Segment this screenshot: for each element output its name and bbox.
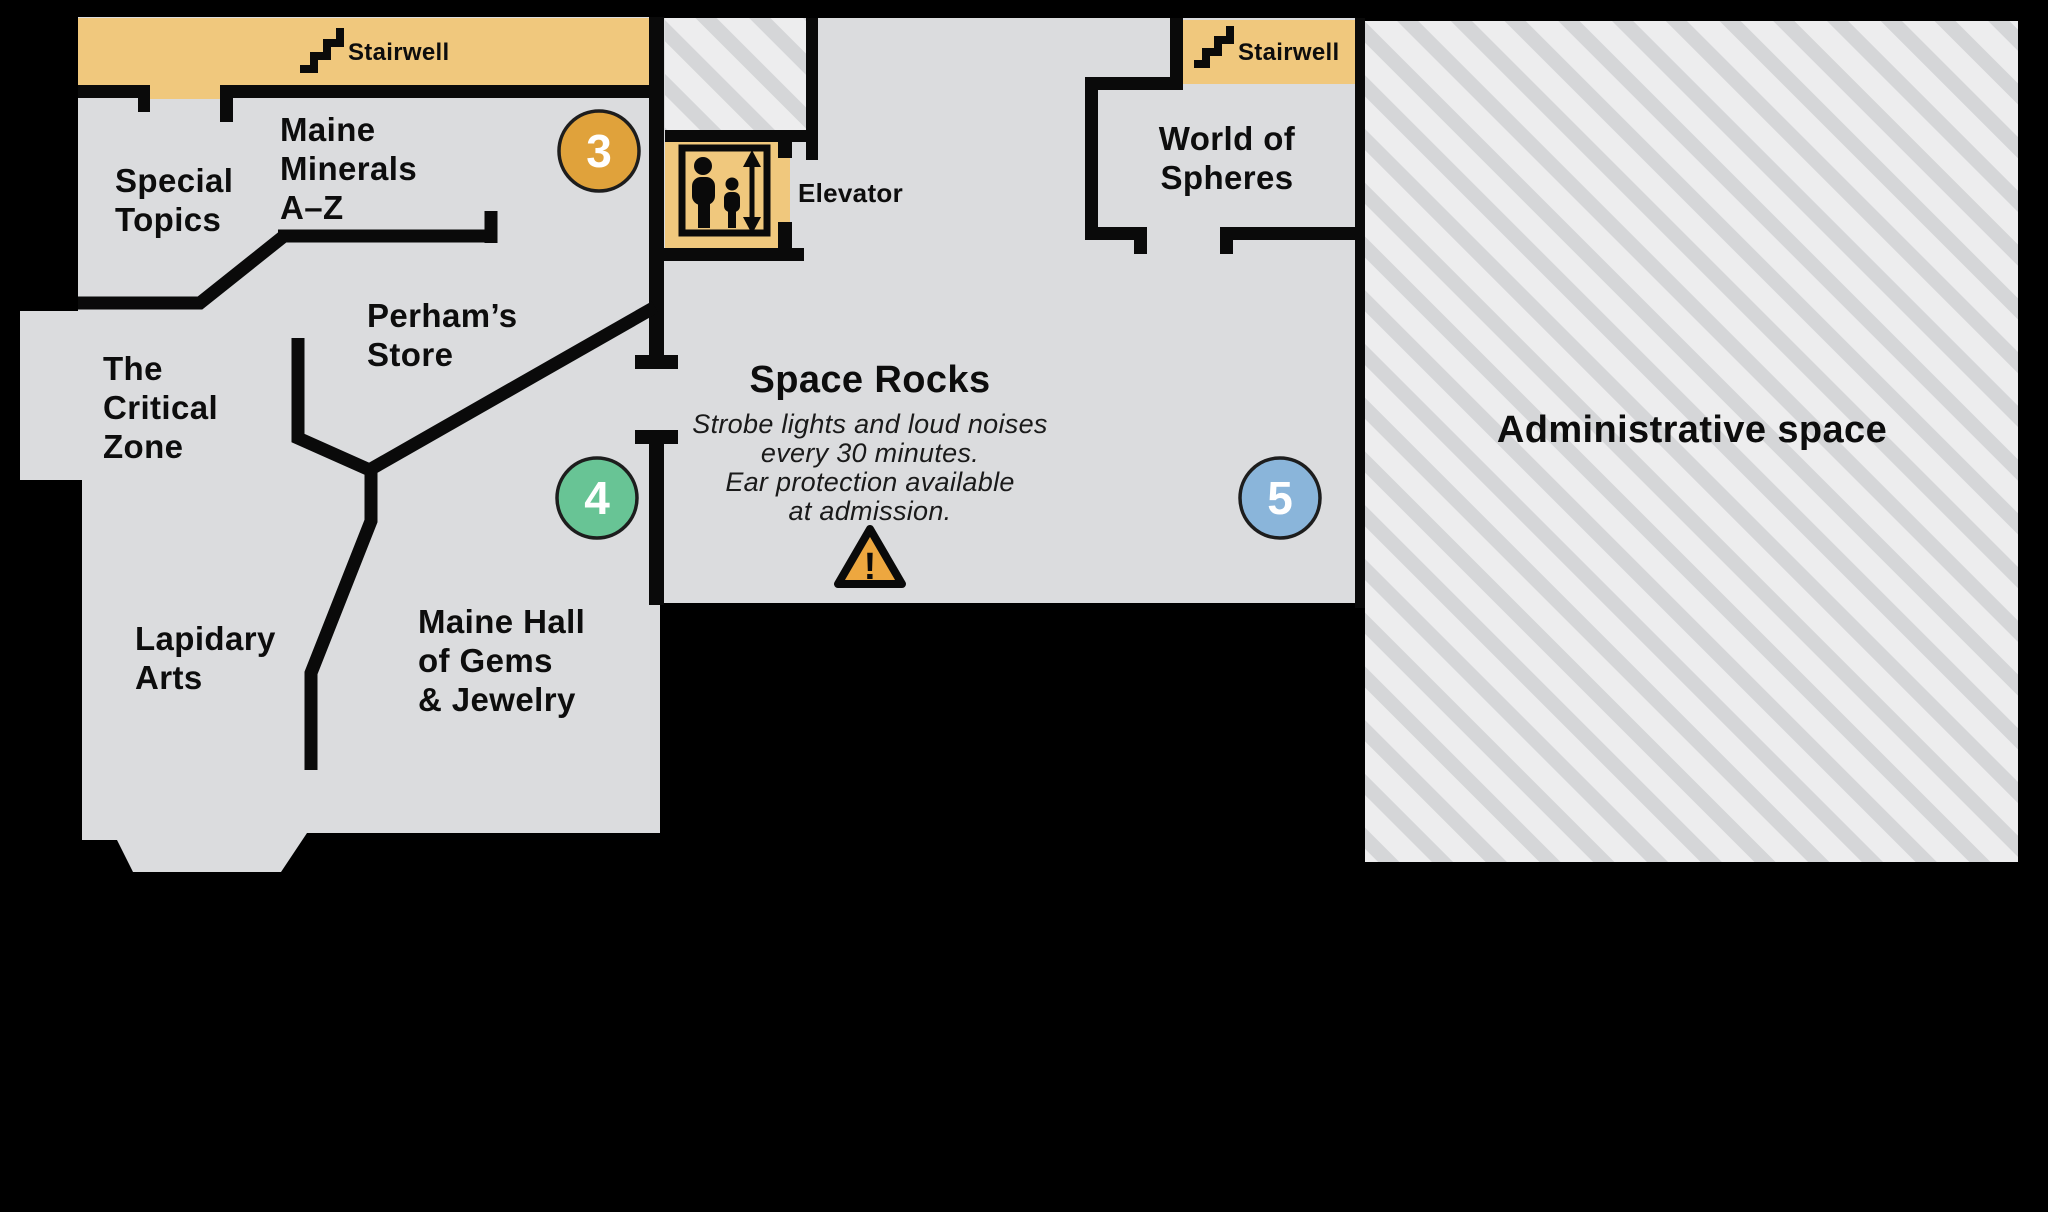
svg-text:Special: Special [115,162,233,199]
svg-text:Perham’s: Perham’s [367,297,518,334]
dividing-wall-lower [649,430,664,605]
marker-5[interactable]: 5 [1240,458,1320,538]
spheres-south-wall-right-stub [1220,240,1233,254]
stairwell-right-label: Stairwell [1238,39,1339,66]
svg-text:at admission.: at admission. [789,496,952,526]
elevator-right-stub-bottom [778,222,792,248]
wall [220,85,654,98]
elevator-label: Elevator [798,178,903,208]
stairwell-left-label: Stairwell [348,39,449,66]
administrative-left-wall [1355,18,1365,608]
spheres-south-wall-right [1220,227,1355,240]
spheres-west-wall [1085,77,1098,237]
svg-text:Zone: Zone [103,428,183,465]
svg-text:World of: World of [1159,120,1296,157]
spheres-south-wall-left-stub [1134,240,1147,254]
stairwell-left-door [150,85,220,99]
elevator-right-stub-top [778,142,792,158]
svg-text:Spheres: Spheres [1160,159,1293,196]
svg-text:Store: Store [367,336,453,373]
svg-text:& Jewelry: & Jewelry [418,681,576,718]
elevator-shaft-bottom-wall [665,130,818,142]
dividing-wall-upper-cap [635,355,678,369]
spheres-north-wall [1085,77,1183,90]
svg-text:Maine Hall: Maine Hall [418,603,585,640]
svg-text:5: 5 [1267,472,1293,524]
svg-text:Minerals: Minerals [280,150,417,187]
svg-text:!: ! [864,546,877,588]
marker-4[interactable]: 4 [557,458,637,538]
svg-text:The: The [103,350,163,387]
svg-text:of Gems: of Gems [418,642,553,679]
elevator-bottom-wall [652,248,804,261]
stairwell-right-left-wall [1170,18,1183,84]
room-label-space-rocks: Space Rocks [750,359,991,401]
svg-text:Maine: Maine [280,111,376,148]
svg-text:4: 4 [584,472,610,524]
room-label-administrative: Administrative space [1497,409,1887,451]
elevator-shaft-right-wall [806,18,818,160]
elevator-shaft-area [665,18,806,130]
wall [220,85,233,122]
svg-text:Ear protection available: Ear protection available [725,467,1014,497]
svg-text:Critical: Critical [103,389,218,426]
svg-text:every 30 minutes.: every 30 minutes. [761,438,979,468]
svg-text:Arts: Arts [135,659,203,696]
floor-plan-map: Stairwell Stairwell Elevator [0,0,2048,1212]
svg-text:Lapidary: Lapidary [135,620,276,657]
svg-text:3: 3 [586,125,612,177]
wall [138,85,150,112]
svg-text:A–Z: A–Z [280,189,344,226]
marker-3[interactable]: 3 [559,111,639,191]
svg-text:Strobe lights and loud noises: Strobe lights and loud noises [692,409,1047,439]
spheres-south-wall-left [1085,227,1147,240]
svg-text:Topics: Topics [115,201,221,238]
